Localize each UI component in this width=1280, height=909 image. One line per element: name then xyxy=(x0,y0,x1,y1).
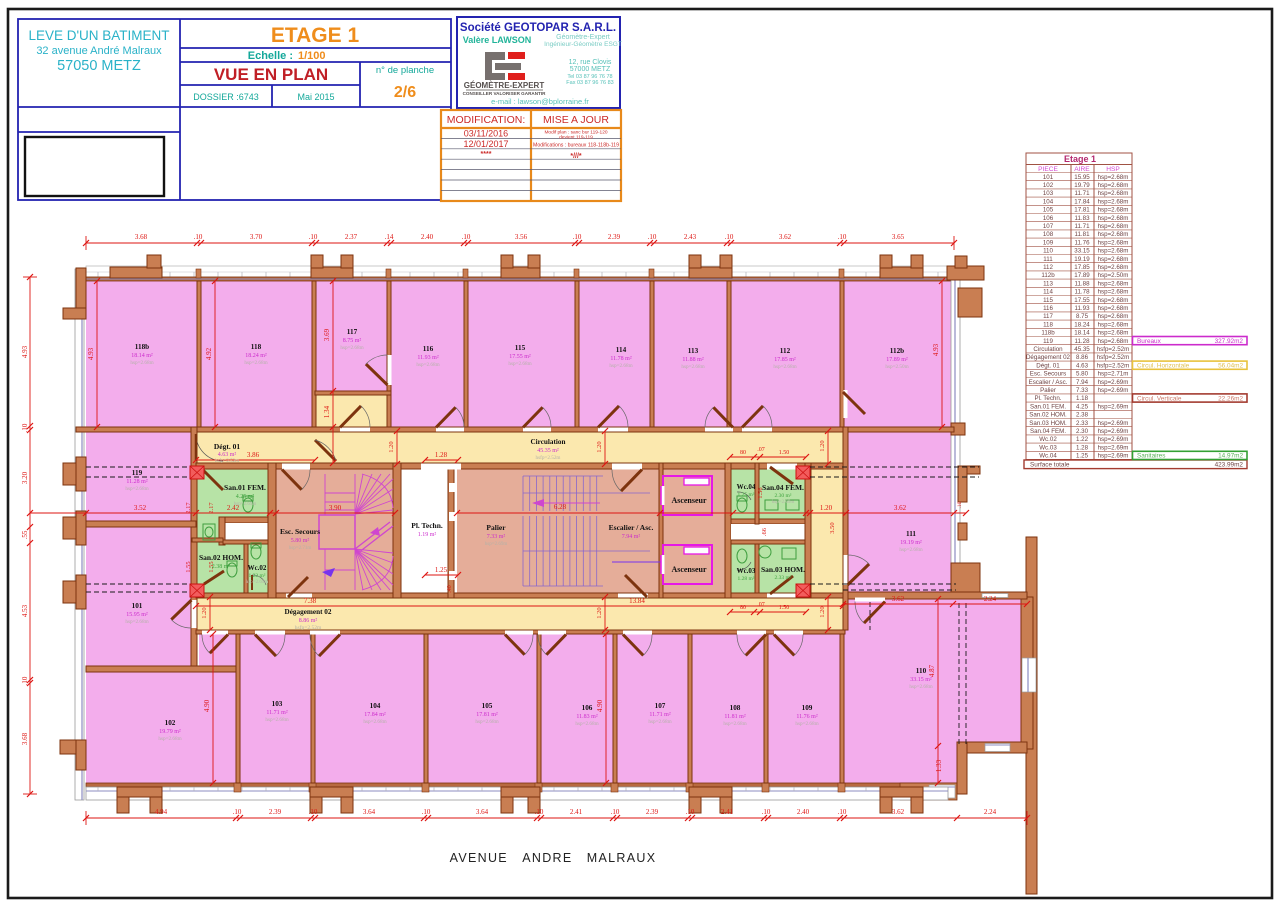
svg-text:8.86: 8.86 xyxy=(1076,354,1089,361)
svg-text:101: 101 xyxy=(1043,174,1054,181)
svg-text:hsp=2.68m: hsp=2.68m xyxy=(575,721,598,727)
svg-text:hsp=2.69m: hsp=2.69m xyxy=(1098,453,1129,460)
svg-text:19.79 m²: 19.79 m² xyxy=(159,729,181,735)
svg-text:117: 117 xyxy=(1043,313,1053,320)
svg-text:hsp=2.68m: hsp=2.68m xyxy=(1098,174,1129,181)
svg-text:Ingénieur-Géomètre ESGT: Ingénieur-Géomètre ESGT xyxy=(544,41,622,48)
svg-text:.55: .55 xyxy=(21,530,29,539)
svg-text:AIRE: AIRE xyxy=(1074,166,1090,173)
svg-text:45.35 m²: 45.35 m² xyxy=(537,448,559,454)
svg-text:4.53: 4.53 xyxy=(21,604,29,617)
svg-text:18.14 m²: 18.14 m² xyxy=(131,353,153,359)
svg-text:3.70: 3.70 xyxy=(250,233,263,241)
svg-text:Wc.02: Wc.02 xyxy=(1039,436,1057,443)
svg-text:hsp=2.68m: hsp=2.68m xyxy=(508,361,531,367)
svg-text:hsp=2.68m: hsp=2.68m xyxy=(1098,321,1129,328)
svg-text:6.28: 6.28 xyxy=(554,503,567,511)
svg-text:3.69: 3.69 xyxy=(323,328,331,341)
svg-text:113: 113 xyxy=(688,347,699,355)
svg-text:San.04 FEM.: San.04 FEM. xyxy=(762,483,804,492)
svg-text:18.24: 18.24 xyxy=(1074,321,1090,328)
svg-text:1.33: 1.33 xyxy=(935,759,943,772)
svg-text:11.71: 11.71 xyxy=(1074,223,1090,230)
svg-text:Fax 03 87 96 76 83: Fax 03 87 96 76 83 xyxy=(566,80,613,86)
svg-text:hsp=2.69m: hsp=2.69m xyxy=(1098,428,1129,435)
svg-text:11.88: 11.88 xyxy=(1074,280,1090,287)
svg-text:2.40: 2.40 xyxy=(421,233,434,241)
svg-text:1.18: 1.18 xyxy=(1076,395,1089,402)
svg-text:.10: .10 xyxy=(21,676,29,685)
svg-text:17.55: 17.55 xyxy=(1074,297,1090,304)
svg-text:327.92m2: 327.92m2 xyxy=(1215,338,1244,345)
svg-text:3.50: 3.50 xyxy=(829,522,836,533)
svg-text:1.20: 1.20 xyxy=(820,504,833,512)
svg-text:hsp=2.71m: hsp=2.71m xyxy=(1098,371,1129,378)
svg-text:2.30 m²: 2.30 m² xyxy=(775,493,792,499)
svg-text:hsp=2.68m: hsp=2.68m xyxy=(125,619,148,625)
svg-text:2.38 m²: 2.38 m² xyxy=(212,564,231,570)
svg-text:hsp=2.68m: hsp=2.68m xyxy=(265,717,288,723)
svg-text:2.39: 2.39 xyxy=(646,808,659,816)
svg-text:.10: .10 xyxy=(233,808,242,816)
svg-text:3.56: 3.56 xyxy=(515,233,528,241)
svg-text:12/01/2017: 12/01/2017 xyxy=(463,139,508,149)
svg-text:112b: 112b xyxy=(1041,272,1055,279)
svg-text:HSP: HSP xyxy=(1106,166,1120,173)
svg-text:3.52: 3.52 xyxy=(134,504,147,512)
svg-text:hsp=2.68m: hsp=2.68m xyxy=(1098,297,1129,304)
svg-text:Mai 2015: Mai 2015 xyxy=(297,92,334,102)
svg-text:1.50: 1.50 xyxy=(779,605,790,611)
svg-text:11.71: 11.71 xyxy=(1074,190,1090,197)
svg-text:ETAGE 1: ETAGE 1 xyxy=(271,24,360,47)
svg-text:Palier: Palier xyxy=(1040,387,1056,394)
svg-text:105: 105 xyxy=(1043,207,1054,214)
svg-text:17.85: 17.85 xyxy=(1074,264,1090,271)
svg-text:.10: .10 xyxy=(422,808,431,816)
svg-text:4.63: 4.63 xyxy=(1076,362,1089,369)
svg-text:hsp=2.69m: hsp=2.69m xyxy=(246,580,269,585)
svg-text:.10: .10 xyxy=(762,808,771,816)
svg-text:7.38: 7.38 xyxy=(304,597,317,605)
svg-text:12, rue Clovis: 12, rue Clovis xyxy=(569,59,612,66)
svg-text:hsp=2.68m: hsp=2.68m xyxy=(244,360,267,366)
svg-text:hsp=2.68m: hsp=2.68m xyxy=(416,362,439,368)
svg-text:hsp=2.68m: hsp=2.68m xyxy=(1098,305,1129,312)
svg-text:MISE A JOUR: MISE A JOUR xyxy=(543,114,609,126)
svg-text:109: 109 xyxy=(802,704,813,712)
svg-text:.10: .10 xyxy=(309,233,318,241)
svg-text:14.97m2: 14.97m2 xyxy=(1218,453,1243,460)
svg-text:1.50: 1.50 xyxy=(779,450,790,456)
svg-text:hsp=2.68m: hsp=2.68m xyxy=(1098,215,1129,222)
svg-text:.10: .10 xyxy=(462,233,471,241)
svg-text:Dégt. 01: Dégt. 01 xyxy=(214,442,240,451)
svg-text:hsp=2.68m: hsp=2.68m xyxy=(1098,223,1129,230)
svg-text:Wc.04: Wc.04 xyxy=(737,483,756,491)
svg-text:4.63 m²: 4.63 m² xyxy=(218,452,237,458)
svg-text:San.02 HOM.: San.02 HOM. xyxy=(1029,412,1067,419)
svg-text:3.68: 3.68 xyxy=(21,732,29,745)
svg-text:3.62: 3.62 xyxy=(779,233,792,241)
svg-text:.10: .10 xyxy=(838,808,847,816)
svg-text:hsp=2.68m: hsp=2.68m xyxy=(773,364,796,370)
svg-text:1.25: 1.25 xyxy=(435,566,448,574)
svg-text:hsp=2.69m: hsp=2.69m xyxy=(485,542,508,547)
svg-text:80: 80 xyxy=(740,605,746,611)
svg-text:.10: .10 xyxy=(648,233,657,241)
svg-text:17.81: 17.81 xyxy=(1074,207,1090,214)
svg-text:hsp=2.68m: hsp=2.68m xyxy=(363,719,386,725)
svg-text:hsp=2.68m: hsp=2.68m xyxy=(1098,198,1129,205)
svg-text:hsfp=2.52m: hsfp=2.52m xyxy=(1097,362,1130,369)
svg-text:hsp=2.50m: hsp=2.50m xyxy=(885,364,908,370)
svg-text:22.26m2: 22.26m2 xyxy=(1218,395,1243,402)
svg-text:hsp=2.68m: hsp=2.68m xyxy=(1098,239,1129,246)
svg-text:2.24: 2.24 xyxy=(984,595,997,603)
svg-text:Pl. Techn.: Pl. Techn. xyxy=(1034,395,1061,402)
svg-text:33.15: 33.15 xyxy=(1074,248,1090,255)
svg-text:2.24: 2.24 xyxy=(984,808,997,816)
svg-text:hsfp=2.52m: hsfp=2.52m xyxy=(1097,346,1130,353)
svg-text:107: 107 xyxy=(1043,223,1054,230)
svg-text:Modifications : bureaux 118-11: Modifications : bureaux 118-118b-119 xyxy=(533,143,619,149)
svg-text:hsp=2.68m: hsp=2.68m xyxy=(1098,190,1129,197)
svg-text:7.94: 7.94 xyxy=(1076,379,1089,386)
svg-text:3.64: 3.64 xyxy=(476,808,489,816)
svg-text:3.62: 3.62 xyxy=(892,808,905,816)
svg-text:hsp=2.68m: hsp=2.68m xyxy=(125,486,148,492)
svg-text:4.87: 4.87 xyxy=(928,664,936,677)
svg-text:****: **** xyxy=(481,151,492,158)
svg-text:hsp=2.68m: hsp=2.68m xyxy=(648,719,671,725)
svg-text:115: 115 xyxy=(1043,297,1053,304)
svg-text:5.80 m²: 5.80 m² xyxy=(291,538,310,544)
svg-text:2.37: 2.37 xyxy=(345,233,358,241)
svg-text:1.22: 1.22 xyxy=(1076,436,1089,443)
svg-text:33.15 m²: 33.15 m² xyxy=(910,677,932,683)
svg-text:1.34: 1.34 xyxy=(323,405,331,418)
svg-text:8.86 m²: 8.86 m² xyxy=(299,618,318,624)
svg-text:4.93: 4.93 xyxy=(21,345,29,358)
svg-text:115: 115 xyxy=(515,344,526,352)
svg-text:15.95 m²: 15.95 m² xyxy=(126,612,148,618)
svg-text:hsfp=2.52m: hsfp=2.52m xyxy=(1097,354,1130,361)
svg-text:2.40: 2.40 xyxy=(797,808,810,816)
svg-text:110: 110 xyxy=(1043,248,1053,255)
svg-text:1.20: 1.20 xyxy=(819,606,826,617)
svg-text:101: 101 xyxy=(132,602,143,610)
svg-text:4.90: 4.90 xyxy=(596,699,604,712)
svg-text:hsp=2.69m: hsp=2.69m xyxy=(1098,420,1129,427)
svg-text:hsp=2.68m: hsp=2.68m xyxy=(158,736,181,742)
svg-text:8.75: 8.75 xyxy=(1076,313,1089,320)
svg-text:1.20: 1.20 xyxy=(201,607,208,618)
svg-text:Escalier / Asc.: Escalier / Asc. xyxy=(1029,379,1068,386)
svg-text:Escalier / Asc.: Escalier / Asc. xyxy=(609,523,654,532)
svg-text:108: 108 xyxy=(730,704,741,712)
svg-text:1.28 m²: 1.28 m² xyxy=(738,576,755,582)
svg-text:11.76 m²: 11.76 m² xyxy=(796,714,817,720)
svg-text:LEVE D'UN BATIMENT: LEVE D'UN BATIMENT xyxy=(28,28,169,43)
svg-text:1/100: 1/100 xyxy=(298,50,326,62)
svg-text:GÉOMÈTRE-EXPERT: GÉOMÈTRE-EXPERT xyxy=(464,81,545,90)
svg-text:32 avenue André Malraux: 32 avenue André Malraux xyxy=(36,45,162,57)
svg-text:11.71 m²: 11.71 m² xyxy=(266,710,287,716)
svg-text:hsp=2.68m: hsp=2.68m xyxy=(1098,289,1129,296)
svg-text:104: 104 xyxy=(370,702,381,710)
svg-text:Wc.03: Wc.03 xyxy=(737,567,756,575)
svg-text:1.25 m²: 1.25 m² xyxy=(738,492,755,498)
svg-text:7.33 m²: 7.33 m² xyxy=(487,534,506,540)
svg-text:hsp=2.69m: hsp=2.69m xyxy=(1098,379,1129,386)
svg-text:57050 METZ: 57050 METZ xyxy=(57,58,141,74)
svg-text:.66: .66 xyxy=(761,527,768,536)
svg-text:17.89: 17.89 xyxy=(1074,272,1090,279)
svg-text:4.25 m²: 4.25 m² xyxy=(236,494,255,500)
svg-text:Société GEOTOPAR S.A.R.L.: Société GEOTOPAR S.A.R.L. xyxy=(460,22,616,34)
svg-text:116: 116 xyxy=(1043,305,1053,312)
svg-text:11.88 m²: 11.88 m² xyxy=(682,357,703,363)
svg-text:Circul. Horizontale: Circul. Horizontale xyxy=(1137,363,1190,370)
svg-text:San.03 HOM.: San.03 HOM. xyxy=(761,565,805,574)
svg-text:hsp=2.68m: hsp=2.68m xyxy=(681,364,704,370)
svg-text:hsfp=2.52m: hsfp=2.52m xyxy=(295,624,322,631)
svg-text:hsp=2.68m: hsp=2.68m xyxy=(1098,330,1129,337)
svg-text:118: 118 xyxy=(251,343,262,351)
svg-text:San.04 FEM.: San.04 FEM. xyxy=(1030,428,1066,435)
svg-text:80: 80 xyxy=(740,450,746,456)
svg-text:Circulation: Circulation xyxy=(1033,346,1063,353)
svg-text:2.39: 2.39 xyxy=(269,808,282,816)
svg-text:11.83: 11.83 xyxy=(1074,215,1090,222)
svg-text:11.81: 11.81 xyxy=(1074,231,1090,238)
svg-text:3.64: 3.64 xyxy=(363,808,376,816)
svg-text:.10: .10 xyxy=(838,233,847,241)
svg-text:118b: 118b xyxy=(1041,330,1055,337)
svg-text:4.90: 4.90 xyxy=(203,699,211,712)
svg-text:3.62: 3.62 xyxy=(894,504,907,512)
svg-text:Dégagement 02: Dégagement 02 xyxy=(285,608,332,616)
svg-text:3.62: 3.62 xyxy=(892,595,905,603)
svg-text:4.25: 4.25 xyxy=(1076,403,1089,410)
svg-text:hsp=2.69m: hsp=2.69m xyxy=(772,500,795,505)
svg-text:5.80: 5.80 xyxy=(1076,371,1089,378)
svg-text:4.93: 4.93 xyxy=(87,347,95,360)
svg-text:45.35: 45.35 xyxy=(1074,346,1090,353)
svg-text:.10: .10 xyxy=(686,808,695,816)
svg-text:112: 112 xyxy=(1043,264,1053,271)
svg-text:7.94 m²: 7.94 m² xyxy=(622,534,641,540)
svg-text:119: 119 xyxy=(132,469,143,477)
svg-text:11.81 m²: 11.81 m² xyxy=(724,714,745,720)
svg-text:n° de planche: n° de planche xyxy=(376,65,434,76)
svg-text:4.94: 4.94 xyxy=(155,808,168,816)
svg-text:.14: .14 xyxy=(385,233,394,241)
svg-text:17.89 m²: 17.89 m² xyxy=(886,357,908,363)
svg-text:Wc.02: Wc.02 xyxy=(248,564,267,572)
svg-text:103: 103 xyxy=(1043,190,1054,197)
svg-text:2.41: 2.41 xyxy=(570,808,583,816)
svg-text:1.28: 1.28 xyxy=(435,451,448,459)
svg-text:15.95: 15.95 xyxy=(1074,174,1090,181)
svg-text:Ascenseur: Ascenseur xyxy=(671,565,707,574)
svg-text:19.19: 19.19 xyxy=(1074,256,1090,263)
svg-text:hsfp=2.52m: hsfp=2.52m xyxy=(215,459,239,464)
svg-text:.40: .40 xyxy=(447,585,453,593)
svg-text:106: 106 xyxy=(582,704,593,712)
svg-text:1.20: 1.20 xyxy=(388,441,395,452)
svg-text:Esc. Secours: Esc. Secours xyxy=(1030,371,1066,378)
svg-text:102: 102 xyxy=(165,719,176,727)
svg-text:CONSEILLER VALORISER GARANTIR: CONSEILLER VALORISER GARANTIR xyxy=(463,91,547,96)
svg-text:Circul. Verticale: Circul. Verticale xyxy=(1137,395,1182,402)
svg-text:2.30: 2.30 xyxy=(1076,428,1089,435)
svg-text:17.84: 17.84 xyxy=(1074,198,1090,205)
svg-text:17.55 m²: 17.55 m² xyxy=(509,354,531,360)
svg-text:Etage 1: Etage 1 xyxy=(1064,154,1096,164)
svg-text:Sanitaires: Sanitaires xyxy=(1137,453,1165,460)
svg-text:17.81 m²: 17.81 m² xyxy=(476,712,498,718)
svg-text:19.19 m²: 19.19 m² xyxy=(900,540,922,546)
svg-text:03/11/2016: 03/11/2016 xyxy=(464,129,508,139)
svg-text:1.55: 1.55 xyxy=(185,561,192,572)
svg-text:11.78 m²: 11.78 m² xyxy=(610,356,631,362)
svg-text:103: 103 xyxy=(272,700,283,708)
svg-text:1.20: 1.20 xyxy=(819,440,826,451)
svg-text:hsp=2.69m: hsp=2.69m xyxy=(1098,444,1129,451)
svg-text:hsp=2.68m: hsp=2.68m xyxy=(1098,280,1129,287)
svg-text:11.93: 11.93 xyxy=(1074,305,1090,312)
svg-text:112b: 112b xyxy=(890,347,904,355)
svg-text:hsp=2.68m: hsp=2.68m xyxy=(1098,231,1129,238)
svg-text:hsp=2.69m: hsp=2.69m xyxy=(234,502,257,507)
svg-text:San.01 FEM.: San.01 FEM. xyxy=(224,483,266,492)
svg-text:Ascenseur: Ascenseur xyxy=(671,496,707,505)
svg-text:hsp=2.68m: hsp=2.68m xyxy=(340,345,363,351)
svg-text:56.04m2: 56.04m2 xyxy=(1218,363,1243,370)
svg-text:1.28: 1.28 xyxy=(1076,444,1089,451)
svg-text:116: 116 xyxy=(423,345,434,353)
svg-text:.10: .10 xyxy=(535,808,544,816)
svg-text:hsp=2.68m: hsp=2.68m xyxy=(1098,182,1129,189)
svg-text:113: 113 xyxy=(1043,280,1053,287)
svg-text:Esc. Secours: Esc. Secours xyxy=(280,527,320,536)
svg-text:118b: 118b xyxy=(135,343,149,351)
svg-text:hsp=2.68m: hsp=2.68m xyxy=(475,719,498,725)
svg-text:102: 102 xyxy=(1043,182,1054,189)
svg-text:423.99m2: 423.99m2 xyxy=(1215,462,1244,469)
svg-text:114: 114 xyxy=(1043,289,1053,296)
svg-text:AVENUE ANDRE MALRAUX: AVENUE ANDRE MALRAUX xyxy=(450,851,657,865)
svg-text:hsp=2.68m: hsp=2.68m xyxy=(1098,248,1129,255)
svg-text:11.28 m²: 11.28 m² xyxy=(126,479,147,485)
svg-text:hsp=2.68m: hsp=2.68m xyxy=(1098,264,1129,271)
svg-text:MODIFICATION:: MODIFICATION: xyxy=(447,114,526,126)
svg-text:3.68: 3.68 xyxy=(135,233,148,241)
svg-text:.10: .10 xyxy=(21,423,29,432)
svg-text:2.33 m²: 2.33 m² xyxy=(775,575,792,581)
svg-text:.10: .10 xyxy=(611,808,620,816)
svg-text:DOSSIER :6743: DOSSIER :6743 xyxy=(193,92,259,102)
svg-text:hsp=2.69m: hsp=2.69m xyxy=(1098,403,1129,410)
svg-text:2.33: 2.33 xyxy=(1076,420,1089,427)
svg-text:San.03 HOM.: San.03 HOM. xyxy=(1029,420,1067,427)
svg-text:2.41: 2.41 xyxy=(721,808,734,816)
svg-text:2.17: 2.17 xyxy=(208,502,215,514)
svg-text:hsp=2.71m: hsp=2.71m xyxy=(289,546,312,551)
svg-text:Pl. Techn.: Pl. Techn. xyxy=(411,521,443,530)
svg-text:*///*: *///* xyxy=(570,153,582,160)
svg-text:Dégagement 02: Dégagement 02 xyxy=(1026,354,1071,361)
svg-text:Echelle :: Echelle : xyxy=(248,50,293,62)
svg-text:hsp=2.68m: hsp=2.68m xyxy=(795,721,818,727)
svg-text:111: 111 xyxy=(906,530,916,538)
svg-text:111: 111 xyxy=(1043,256,1053,263)
svg-text:hsp=2.69m: hsp=2.69m xyxy=(1098,436,1129,443)
svg-text:119: 119 xyxy=(1043,338,1053,345)
svg-text:4.92: 4.92 xyxy=(205,347,213,360)
svg-text:18.24 m²: 18.24 m² xyxy=(245,353,267,359)
svg-text:106: 106 xyxy=(1043,215,1054,222)
svg-text:11.78: 11.78 xyxy=(1074,289,1090,296)
svg-text:11.28: 11.28 xyxy=(1074,338,1090,345)
svg-text:e-mail : lawson@bplorraine.fr: e-mail : lawson@bplorraine.fr xyxy=(491,97,589,106)
svg-text:17.85 m²: 17.85 m² xyxy=(774,357,796,363)
svg-text:2/6: 2/6 xyxy=(394,84,416,101)
svg-text:San.02 HOM.: San.02 HOM. xyxy=(199,553,243,562)
svg-text:Palier: Palier xyxy=(486,523,506,532)
svg-text:hsp=2.68m: hsp=2.68m xyxy=(609,363,632,369)
svg-text:hsp=2.68m: hsp=2.68m xyxy=(130,360,153,366)
svg-text:hsp=2.68m: hsp=2.68m xyxy=(1098,313,1129,320)
svg-text:3.65: 3.65 xyxy=(892,233,905,241)
svg-text:.10: .10 xyxy=(957,501,963,508)
svg-text:110: 110 xyxy=(916,667,927,675)
svg-text:112: 112 xyxy=(780,347,791,355)
svg-text:107: 107 xyxy=(655,702,666,710)
svg-text:devient 119-119: devient 119-119 xyxy=(559,135,593,141)
svg-text:San.01 FEM.: San.01 FEM. xyxy=(1030,403,1066,410)
svg-text:11.93 m²: 11.93 m² xyxy=(417,355,438,361)
svg-text:1.20: 1.20 xyxy=(596,441,603,452)
svg-text:VUE EN PLAN: VUE EN PLAN xyxy=(214,65,328,84)
svg-text:108: 108 xyxy=(1043,231,1054,238)
svg-text:8.75 m²: 8.75 m² xyxy=(343,338,362,344)
svg-text:117: 117 xyxy=(347,328,358,336)
svg-text:hsp=2.68m: hsp=2.68m xyxy=(899,547,922,553)
svg-text:hsp=2.68m: hsp=2.68m xyxy=(909,684,932,690)
svg-text:PIECE: PIECE xyxy=(1038,166,1058,173)
svg-text:hsp=2.68m: hsp=2.68m xyxy=(1098,256,1129,263)
svg-text:4.93: 4.93 xyxy=(932,343,940,356)
svg-text:hsfp=2.52m: hsfp=2.52m xyxy=(536,454,561,461)
svg-text:Bureaux: Bureaux xyxy=(1137,338,1162,345)
svg-text:.10: .10 xyxy=(194,233,203,241)
svg-text:Géomètre-Expert: Géomètre-Expert xyxy=(556,34,610,41)
svg-text:hsp=2.68m: hsp=2.68m xyxy=(723,721,746,727)
svg-text:17.84 m²: 17.84 m² xyxy=(364,712,386,718)
svg-text:.07: .07 xyxy=(757,602,765,608)
svg-text:3.20: 3.20 xyxy=(21,471,29,484)
svg-text:11.76: 11.76 xyxy=(1074,239,1090,246)
svg-text:105: 105 xyxy=(482,702,493,710)
svg-text:1.22 m²: 1.22 m² xyxy=(249,573,266,579)
svg-text:hsp=2.68m: hsp=2.68m xyxy=(1098,338,1129,345)
svg-text:Valère LAWSON: Valère LAWSON xyxy=(463,35,532,45)
svg-text:1.19 m²: 1.19 m² xyxy=(418,532,437,538)
svg-text:Wc.04: Wc.04 xyxy=(1039,453,1057,460)
